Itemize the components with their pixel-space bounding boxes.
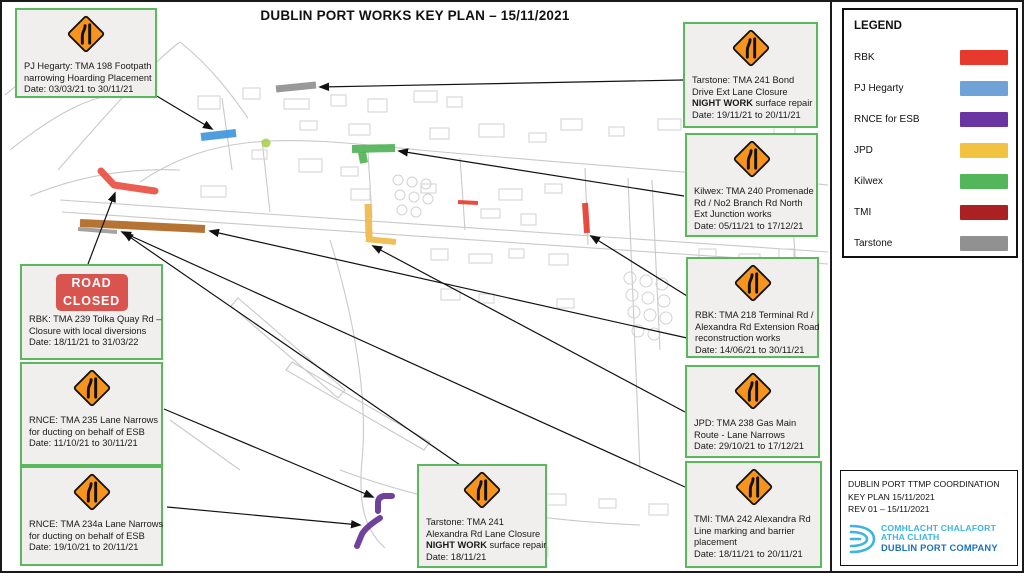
legend-label: JPD — [852, 145, 873, 156]
legend-swatch — [960, 205, 1008, 220]
logo-text-company: DUBLIN PORT COMPANY — [881, 543, 998, 554]
work-segment-rbk-terminal-rd — [585, 203, 587, 233]
callout-text-line: Alexandra Rd Lane Closure — [426, 529, 539, 541]
callout-text-line: placement — [694, 537, 814, 549]
callout-text-line: Rd / No2 Branch Rd North — [694, 198, 810, 210]
callout-pj-hegarty-198: PJ Hegarty: TMA 198 Footpathnarrowing Ho… — [15, 8, 157, 98]
callout-text-line: Date: 18/11/21 — [426, 552, 539, 564]
callout-text-line: JPD: TMA 238 Gas Main — [694, 418, 812, 430]
annotation-arrow — [210, 231, 687, 338]
callout-tarstone-241-alexandra: Tarstone: TMA 241Alexandra Rd Lane Closu… — [417, 464, 547, 568]
work-segment-jpd-gas-main-vertical — [368, 204, 369, 237]
work-segment-rbk-terminal-spur — [458, 202, 478, 203]
road-closed-sign-text: ROAD — [56, 275, 128, 293]
legend-label: Kilwex — [852, 176, 883, 187]
callout-text-line: Kilwex: TMA 240 Promenade — [694, 186, 810, 198]
work-segment-rnce-235-ducting — [378, 496, 392, 511]
callout-text-line: Date: 18/11/21 to 20/11/21 — [694, 549, 814, 561]
callout-text-line: PJ Hegarty: TMA 198 Footpath — [24, 61, 149, 73]
legend-item-pj-hegarty: PJ Hegarty — [852, 73, 1008, 104]
callout-rnce-235: RNCE: TMA 235 Lane Narrowsfor ducting on… — [20, 362, 163, 466]
dublin-port-logo: COMHLACHT CHALAFORT ATHA CLIATH DUBLIN P… — [848, 521, 1011, 557]
callout-text-line: Closure with local diversions — [29, 326, 155, 338]
callout-text-line: Line marking and barrier — [694, 526, 814, 538]
callout-sign — [732, 465, 776, 514]
callout-text-line: Date: 05/11/21 to 17/12/21 — [694, 221, 810, 233]
callout-text-line: Date: 18/11/21 to 31/03/22 — [29, 337, 155, 349]
dublin-port-key-plan-page: DUBLIN PORT WORKS KEY PLAN – 15/11/2021 … — [0, 0, 1024, 573]
dublin-port-logo-icon — [848, 521, 878, 557]
callout-text-line: Alexandra Rd Extension Road — [695, 322, 811, 334]
callout-text-line: Date: 11/10/21 to 30/11/21 — [29, 438, 155, 450]
callout-sign — [70, 366, 114, 415]
title-block-line: DUBLIN PORT TTMP COORDINATION — [848, 478, 1011, 491]
road-narrows-sign-icon — [731, 261, 775, 305]
legend-item-rbk: RBK — [852, 42, 1008, 73]
right-column: LEGEND RBKPJ HegartyRNCE for ESBJPDKilwe… — [830, 0, 1024, 573]
callout-text-line: RBK: TMA 218 Terminal Rd / — [695, 310, 811, 322]
annotation-arrow — [399, 151, 684, 196]
work-segment-kilwex-junction-main — [352, 148, 395, 149]
legend-swatch — [960, 143, 1008, 158]
callout-rnce-234a: RNCE: TMA 234a Lane Narrowsfor ducting o… — [20, 466, 163, 566]
work-segment-rbk-tolka-closure — [101, 171, 155, 191]
legend-item-rnce-for-esb: RNCE for ESB — [852, 104, 1008, 135]
callout-text-line: for ducting on behalf of ESB — [29, 427, 155, 439]
legend-swatch — [960, 174, 1008, 189]
legend-box: LEGEND RBKPJ HegartyRNCE for ESBJPDKilwe… — [842, 8, 1018, 258]
work-segment-kilwex-junction-stub — [362, 152, 364, 163]
legend-label: RNCE for ESB — [852, 114, 920, 125]
road-narrows-sign-icon — [70, 470, 114, 514]
logo-text-irish-2: ATHA CLIATH — [881, 533, 998, 543]
callout-sign — [64, 12, 108, 61]
callout-text-line: Route - Lane Narrows — [694, 430, 812, 442]
callout-text-line: Date: 29/10/21 to 17/12/21 — [694, 441, 812, 453]
callout-rbk-218: RBK: TMA 218 Terminal Rd /Alexandra Rd E… — [686, 257, 819, 358]
road-narrows-sign-icon — [460, 468, 504, 512]
legend-item-jpd: JPD — [852, 135, 1008, 166]
callout-jpd-238: JPD: TMA 238 Gas MainRoute - Lane Narrow… — [685, 365, 820, 458]
legend-item-tmi: TMI — [852, 197, 1008, 228]
callout-sign — [730, 137, 774, 186]
work-segment-jpd-gas-main-horizontal — [366, 239, 396, 242]
callout-text-line: Ext Junction works — [694, 209, 810, 221]
callout-text-line: NIGHT WORK surface repair — [692, 98, 810, 110]
callout-text-line: RBK: TMA 239 Tolka Quay Rd – — [29, 314, 155, 326]
work-segment-rnce-234a-ducting — [357, 518, 380, 546]
annotation-arrow — [591, 236, 687, 296]
callout-tarstone-241-bond: Tarstone: TMA 241 BondDrive Ext Lane Clo… — [683, 22, 818, 128]
callout-text-line: Date: 19/10/21 to 20/11/21 — [29, 542, 155, 554]
work-segment-pj-hegarty-footpath — [201, 133, 236, 137]
callout-sign — [731, 369, 775, 418]
road-narrows-sign-icon — [70, 366, 114, 410]
work-segment-rbk-alexandra-extension — [80, 223, 205, 229]
legend-label: RBK — [852, 52, 875, 63]
callout-sign: ROADCLOSED — [56, 268, 128, 314]
legend-title: LEGEND — [854, 20, 1008, 32]
road-narrows-sign-icon — [64, 12, 108, 56]
road-narrows-sign-icon — [732, 465, 776, 509]
annotation-arrow — [164, 409, 373, 497]
callout-sign — [70, 470, 114, 519]
road-narrows-sign-icon — [730, 137, 774, 181]
callout-sign — [731, 261, 775, 310]
callout-text-line: Tarstone: TMA 241 Bond — [692, 75, 810, 87]
callout-text-line: Tarstone: TMA 241 — [426, 517, 539, 529]
annotation-arrow — [150, 92, 212, 129]
callout-text-line: Drive Ext Lane Closure — [692, 87, 810, 99]
annotation-arrow — [167, 507, 360, 525]
legend-item-kilwex: Kilwex — [852, 166, 1008, 197]
annotation-arrow — [373, 246, 685, 412]
callout-text-line: Date: 14/06/21 to 30/11/21 — [695, 345, 811, 357]
callout-sign — [460, 468, 504, 517]
road-narrows-sign-icon — [729, 26, 773, 70]
callout-tmi-242: TMI: TMA 242 Alexandra RdLine marking an… — [685, 461, 822, 568]
legend-label: PJ Hegarty — [852, 83, 903, 94]
legend-label: TMI — [852, 207, 871, 218]
callout-text-line: Date: 19/11/21 to 20/11/21 — [692, 110, 810, 122]
callout-text-line: Date: 03/03/21 to 30/11/21 — [24, 84, 149, 96]
callout-text-line: RNCE: TMA 234a Lane Narrows — [29, 519, 155, 531]
title-block-line: KEY PLAN 15/11/2021 — [848, 491, 1011, 504]
callout-text-line: reconstruction works — [695, 333, 811, 345]
work-segment-tarstone-bond-drive — [276, 85, 316, 89]
work-segment-tarstone-alexandra — [78, 229, 117, 232]
title-block-line: REV 01 – 15/11/2021 — [848, 503, 1011, 516]
callout-rbk-239: ROADCLOSEDRBK: TMA 239 Tolka Quay Rd –Cl… — [20, 264, 163, 360]
legend-item-tarstone: Tarstone — [852, 228, 1008, 259]
work-segment-roundabout-marker — [262, 139, 271, 148]
legend-label: Tarstone — [852, 238, 892, 249]
callout-text-line: for ducting on behalf of ESB — [29, 531, 155, 543]
legend-swatch — [960, 50, 1008, 65]
legend-swatch — [960, 81, 1008, 96]
annotation-arrow — [124, 233, 463, 467]
road-narrows-sign-icon — [731, 369, 775, 413]
callout-text-line: narrowing Hoarding Placement — [24, 73, 149, 85]
annotation-arrow — [320, 80, 683, 87]
legend-swatch — [960, 236, 1008, 251]
road-closed-sign-text: CLOSED — [56, 293, 128, 311]
legend-swatch — [960, 112, 1008, 127]
road-closed-sign: ROADCLOSED — [56, 274, 128, 311]
callout-sign — [729, 26, 773, 75]
callout-text-line: TMI: TMA 242 Alexandra Rd — [694, 514, 814, 526]
callout-text-line: NIGHT WORK surface repair — [426, 540, 539, 552]
annotation-arrow — [122, 232, 685, 487]
title-block: DUBLIN PORT TTMP COORDINATION KEY PLAN 1… — [840, 470, 1018, 566]
callout-kilwex-240: Kilwex: TMA 240 PromenadeRd / No2 Branch… — [685, 133, 818, 237]
callout-text-line: RNCE: TMA 235 Lane Narrows — [29, 415, 155, 427]
